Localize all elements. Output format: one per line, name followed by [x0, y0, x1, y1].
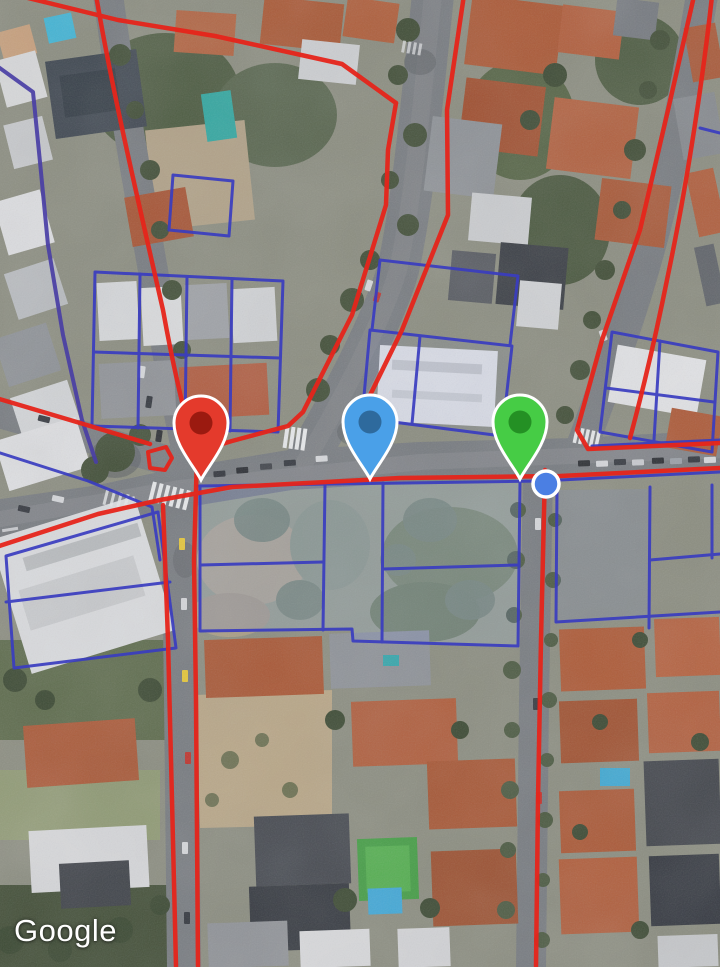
map-viewport[interactable]: Google — [0, 0, 720, 967]
blue-dot-marker[interactable] — [533, 471, 559, 497]
google-watermark: Google — [14, 913, 117, 949]
